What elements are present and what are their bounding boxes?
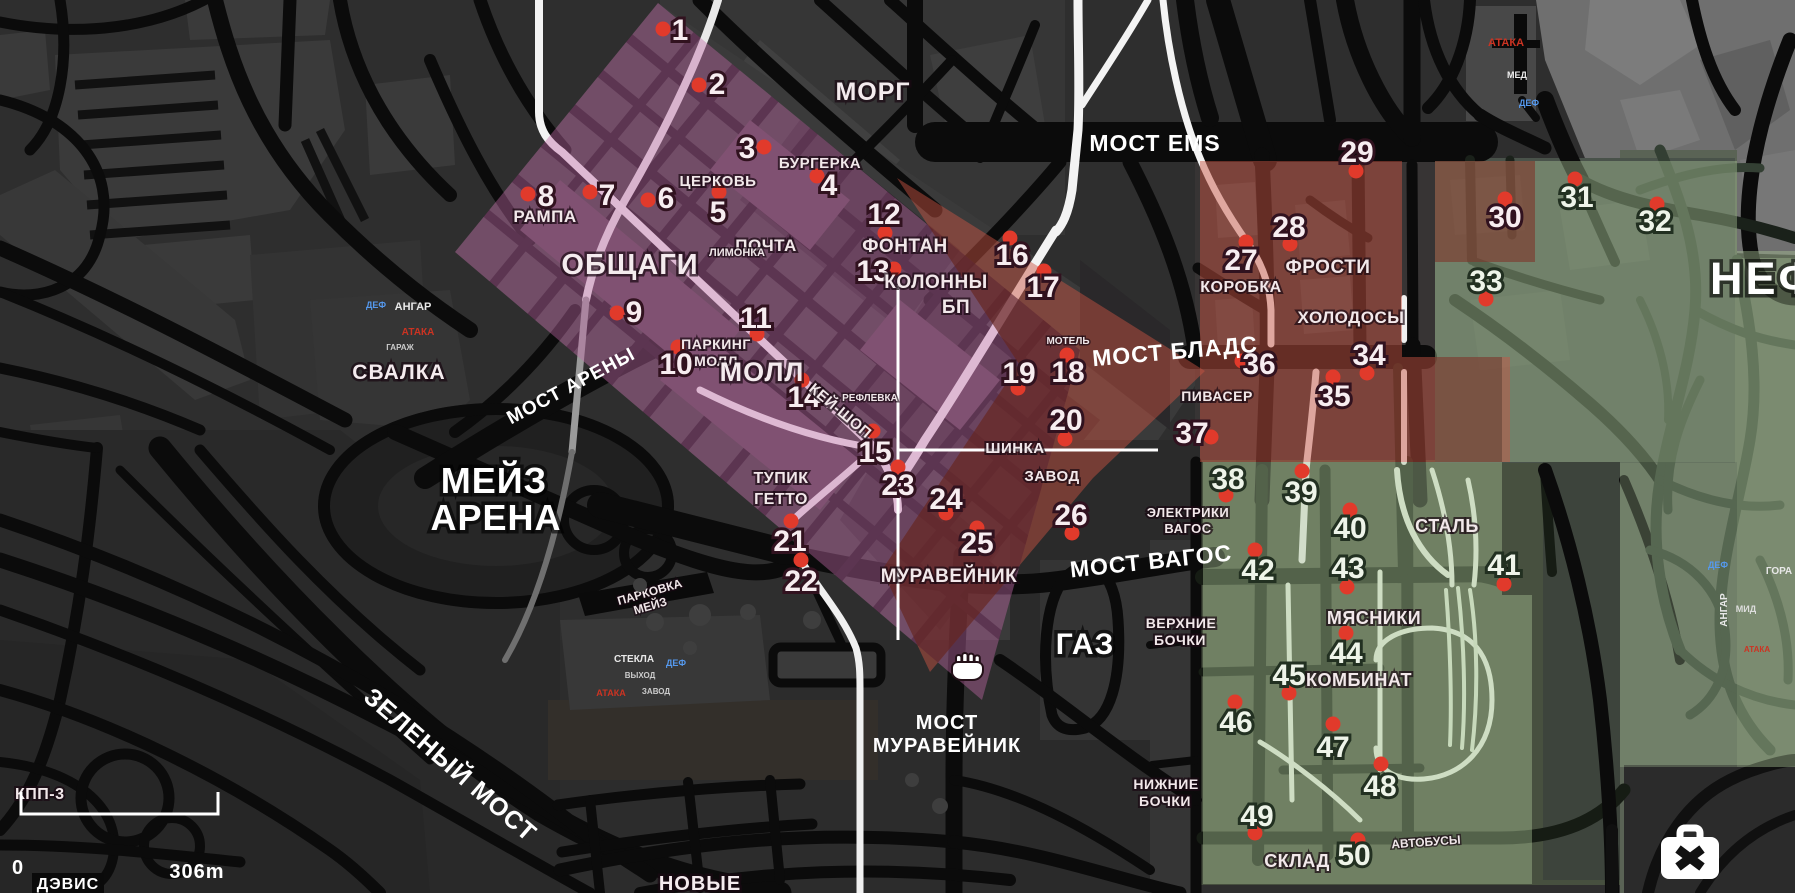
svg-text:ДЕФ: ДЕФ (666, 658, 686, 668)
svg-text:42: 42 (1241, 554, 1274, 587)
svg-text:26: 26 (1054, 499, 1087, 532)
svg-text:СКЛАД: СКЛАД (1264, 851, 1330, 871)
svg-text:ЗАВОД: ЗАВОД (642, 687, 670, 696)
svg-text:МОСТ: МОСТ (916, 712, 978, 734)
svg-text:5: 5 (710, 196, 727, 229)
svg-text:6: 6 (658, 182, 675, 215)
svg-text:МИД: МИД (1736, 604, 1757, 614)
svg-text:33: 33 (1469, 265, 1502, 298)
svg-text:43: 43 (1331, 552, 1364, 585)
svg-text:МОСТ EMS: МОСТ EMS (1089, 130, 1220, 156)
svg-text:АНГАР: АНГАР (395, 301, 432, 313)
svg-text:МОЛЛ: МОЛЛ (720, 357, 805, 387)
svg-text:АТАКА: АТАКА (1488, 37, 1524, 49)
svg-text:29: 29 (1340, 136, 1373, 169)
svg-text:ЗАВОД: ЗАВОД (1024, 468, 1079, 485)
svg-text:30: 30 (1488, 201, 1521, 234)
svg-text:ГЕТТО: ГЕТТО (754, 491, 808, 508)
svg-text:ЛИМОНКА: ЛИМОНКА (709, 247, 765, 259)
svg-text:48: 48 (1363, 770, 1396, 803)
svg-text:32: 32 (1638, 205, 1671, 238)
svg-text:45: 45 (1272, 659, 1305, 692)
svg-text:МОРГ: МОРГ (835, 78, 910, 106)
svg-text:БОЧКИ: БОЧКИ (1154, 632, 1206, 648)
svg-text:28: 28 (1272, 211, 1305, 244)
svg-text:СТЕКЛА: СТЕКЛА (614, 654, 654, 665)
svg-text:МУРАВЕЙНИК: МУРАВЕЙНИК (881, 565, 1017, 587)
svg-text:19: 19 (1002, 357, 1035, 390)
svg-text:КОМБИНАТ: КОМБИНАТ (1306, 670, 1412, 690)
svg-text:ФОНТАН: ФОНТАН (862, 236, 948, 257)
svg-text:ВЕРХНИЕ: ВЕРХНИЕ (1146, 615, 1217, 631)
svg-text:27: 27 (1224, 244, 1257, 277)
svg-text:24: 24 (929, 483, 963, 516)
svg-text:МУРАВЕЙНИК: МУРАВЕЙНИК (873, 733, 1021, 757)
svg-text:МЯСНИКИ: МЯСНИКИ (1327, 608, 1421, 628)
svg-text:МОТЕЛЬ: МОТЕЛЬ (1046, 336, 1089, 347)
svg-text:18: 18 (1051, 356, 1084, 389)
svg-text:49: 49 (1240, 800, 1273, 833)
svg-text:РАМПА: РАМПА (513, 207, 576, 226)
svg-text:ГАЗ: ГАЗ (1056, 628, 1115, 661)
svg-text:БУРГЕРКА: БУРГЕРКА (779, 155, 861, 172)
svg-text:БП: БП (942, 297, 970, 318)
svg-text:34: 34 (1352, 339, 1386, 372)
svg-text:22: 22 (784, 565, 817, 598)
svg-text:39: 39 (1284, 476, 1317, 509)
svg-text:АТАКА: АТАКА (1744, 645, 1770, 654)
svg-text:ДЕФ: ДЕФ (1708, 560, 1728, 570)
svg-text:44: 44 (1329, 637, 1363, 670)
svg-text:ФРОСТИ: ФРОСТИ (1286, 257, 1371, 278)
svg-text:ПИВАСЕР: ПИВАСЕР (1181, 388, 1253, 404)
svg-text:25: 25 (960, 527, 993, 560)
svg-text:СТАЛЬ: СТАЛЬ (1415, 516, 1479, 536)
svg-text:БОЧКИ: БОЧКИ (1139, 793, 1191, 809)
svg-text:ДЕФ: ДЕФ (366, 300, 386, 310)
svg-text:1: 1 (672, 14, 689, 47)
svg-text:37: 37 (1175, 417, 1208, 450)
svg-text:НИЖНИЕ: НИЖНИЕ (1133, 776, 1198, 792)
svg-text:3: 3 (739, 132, 756, 165)
svg-text:НЕФТ: НЕФТ (1710, 253, 1795, 304)
svg-text:16: 16 (995, 239, 1028, 272)
svg-text:АТАКА: АТАКА (596, 688, 626, 698)
svg-text:306m: 306m (169, 861, 224, 883)
svg-text:40: 40 (1333, 512, 1366, 545)
svg-text:ЦЕРКОВЬ: ЦЕРКОВЬ (680, 173, 757, 190)
svg-text:АТАКА: АТАКА (402, 327, 435, 338)
svg-text:17: 17 (1026, 271, 1059, 304)
svg-text:47: 47 (1316, 731, 1349, 764)
svg-text:НОВЫЕ: НОВЫЕ (659, 873, 741, 893)
svg-text:ВЫХОД: ВЫХОД (625, 671, 656, 680)
svg-text:ВАГОС: ВАГОС (1164, 521, 1211, 536)
svg-text:10: 10 (659, 348, 692, 381)
svg-text:МЕЙЗ: МЕЙЗ (441, 459, 547, 501)
svg-text:23: 23 (881, 469, 914, 502)
svg-text:КОРОБКА: КОРОБКА (1200, 279, 1281, 296)
svg-text:АРЕНА: АРЕНА (430, 497, 561, 538)
svg-text:КОЛОННЫ: КОЛОННЫ (884, 272, 988, 293)
svg-text:9: 9 (626, 296, 643, 329)
svg-text:РЕФЛЕВКА: РЕФЛЕВКА (842, 393, 898, 404)
svg-text:12: 12 (867, 198, 900, 231)
svg-text:2: 2 (709, 68, 726, 101)
svg-text:31: 31 (1560, 181, 1593, 214)
svg-text:АНГАР: АНГАР (1719, 593, 1730, 627)
svg-text:41: 41 (1487, 549, 1520, 582)
svg-text:ОБЩАГИ: ОБЩАГИ (561, 249, 698, 281)
svg-text:7: 7 (599, 179, 616, 212)
svg-text:50: 50 (1337, 839, 1370, 872)
svg-text:46: 46 (1219, 706, 1252, 739)
svg-text:4: 4 (821, 169, 838, 202)
svg-text:СВАЛКА: СВАЛКА (352, 361, 445, 384)
svg-text:0: 0 (12, 857, 24, 879)
svg-text:МЕД: МЕД (1507, 70, 1528, 80)
svg-text:ШИНКА: ШИНКА (985, 440, 1044, 457)
svg-text:ГАРАЖ: ГАРАЖ (386, 343, 414, 352)
svg-text:11: 11 (740, 302, 772, 335)
svg-text:ХОЛОДОСЫ: ХОЛОДОСЫ (1298, 308, 1405, 327)
svg-text:ЭЛЕКТРИКИ: ЭЛЕКТРИКИ (1147, 505, 1230, 520)
svg-text:ДЭВИС: ДЭВИС (37, 876, 99, 893)
svg-text:ГОРА: ГОРА (1766, 566, 1792, 577)
svg-text:20: 20 (1049, 404, 1082, 437)
svg-text:ТУПИК: ТУПИК (754, 470, 809, 487)
svg-text:35: 35 (1317, 380, 1350, 413)
svg-text:ДЕФ: ДЕФ (1519, 98, 1539, 108)
svg-text:ПАРКИНГ: ПАРКИНГ (681, 336, 751, 352)
svg-text:38: 38 (1211, 463, 1244, 496)
